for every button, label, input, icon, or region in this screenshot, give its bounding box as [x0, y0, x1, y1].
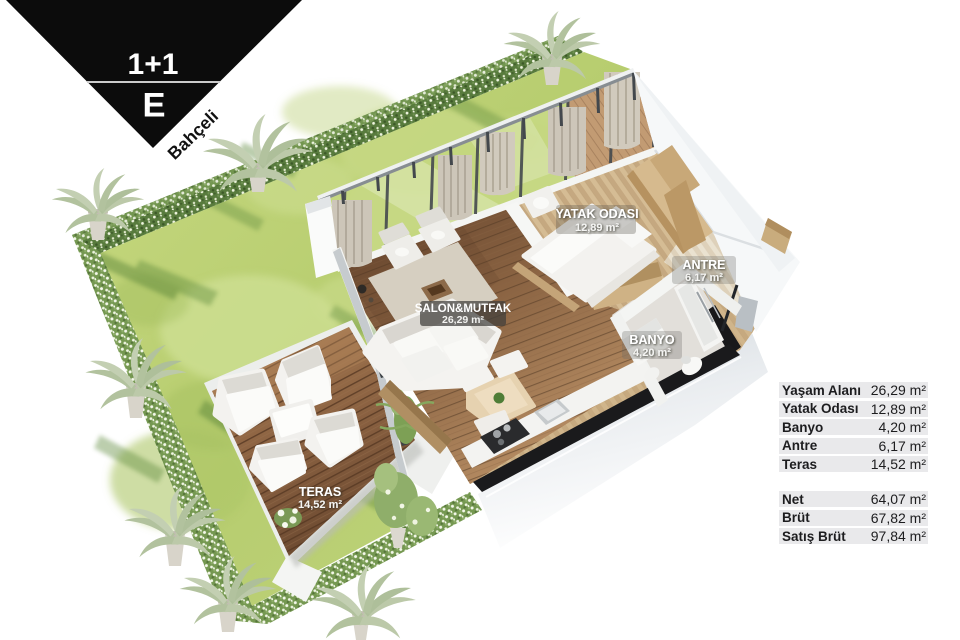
svg-text:TERAS: TERAS	[299, 485, 341, 499]
svg-text:E: E	[142, 87, 165, 125]
svg-text:1+1: 1+1	[128, 48, 179, 81]
svg-text:YATAK ODASI: YATAK ODASI	[555, 207, 638, 221]
svg-text:14,52 m²: 14,52 m²	[298, 499, 342, 511]
svg-text:12,89 m²: 12,89 m²	[575, 222, 619, 234]
svg-text:BANYO: BANYO	[629, 333, 674, 347]
svg-text:4,20 m²: 4,20 m²	[633, 347, 671, 359]
svg-text:ANTRE: ANTRE	[682, 258, 725, 272]
svg-text:26,29 m²: 26,29 m²	[442, 314, 485, 326]
svg-text:6,17 m²: 6,17 m²	[685, 272, 723, 284]
